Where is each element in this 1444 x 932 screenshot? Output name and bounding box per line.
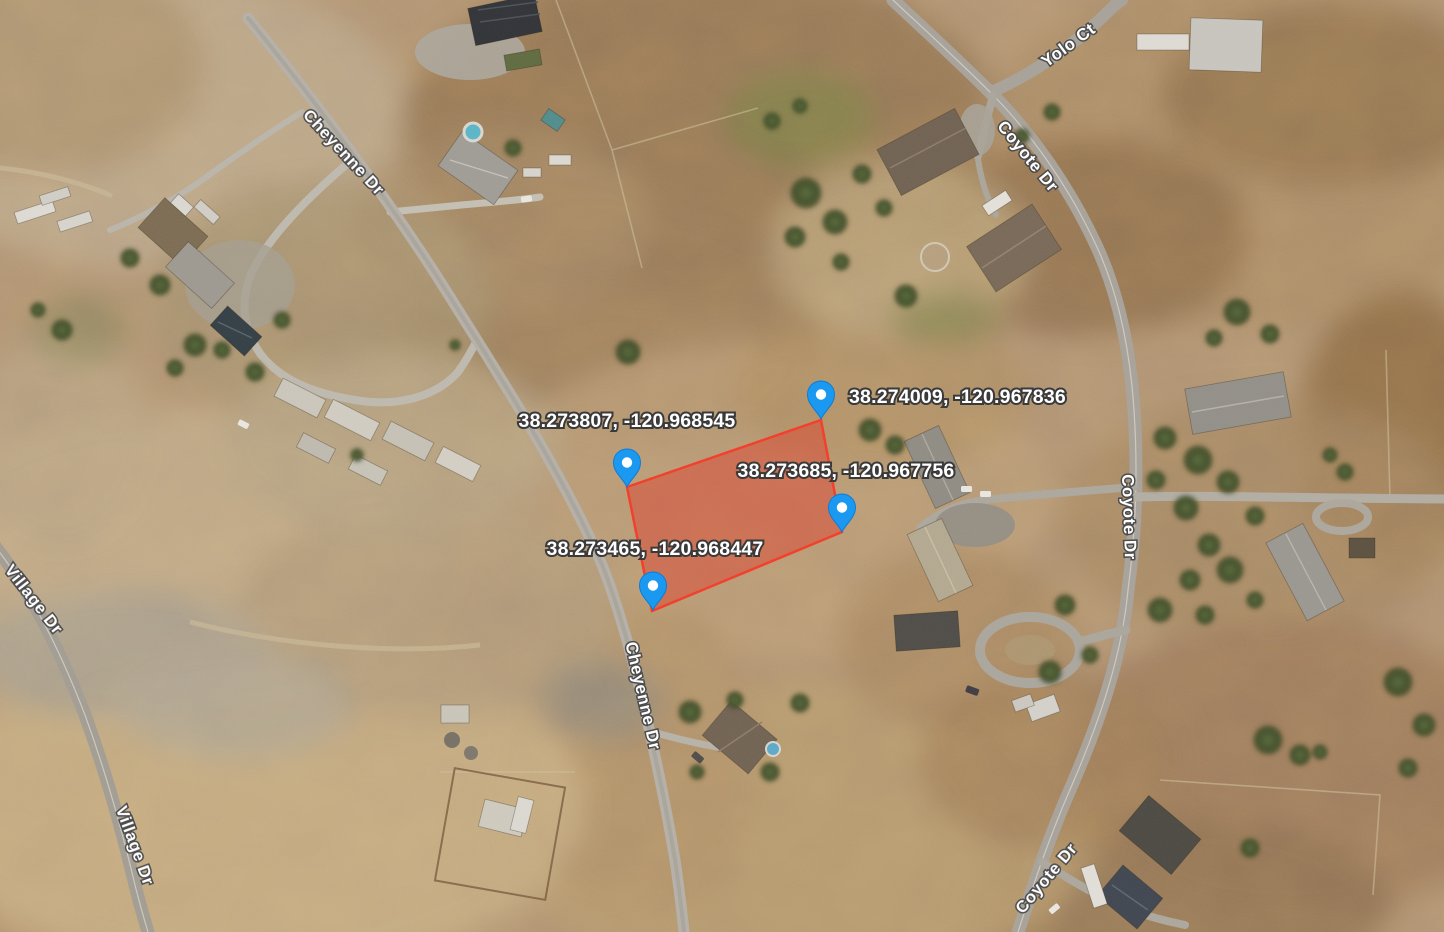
coordinate-label-south: 38.273465, -120.968447	[547, 538, 764, 560]
coordinate-label-northwest: 38.273807, -120.968545	[519, 410, 736, 432]
satellite-map[interactable]: Cheyenne Dr Cheyenne Dr Yolo Ct Coyote D…	[0, 0, 1444, 932]
coordinate-label-east: 38.273685, -120.967756	[738, 460, 955, 482]
coordinate-label-northeast: 38.274009, -120.967836	[849, 386, 1066, 408]
road-label-coyote-dr-2: Coyote Dr	[1118, 474, 1140, 560]
